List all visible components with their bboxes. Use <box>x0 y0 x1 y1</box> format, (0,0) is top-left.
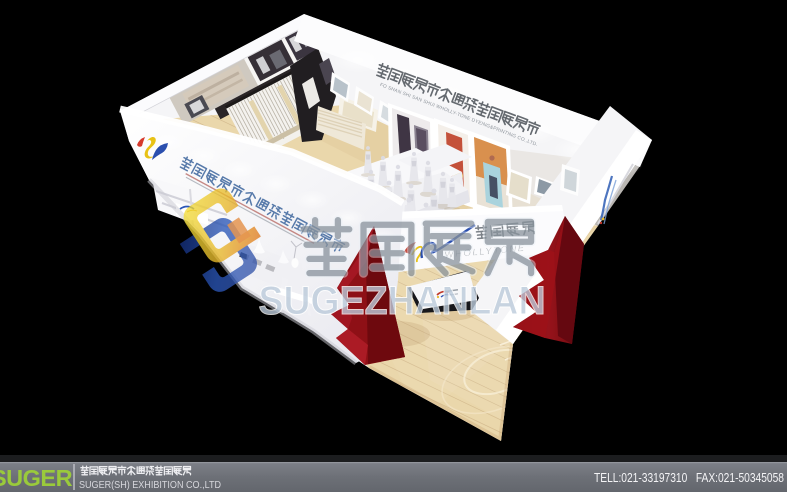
svg-text:SUGER(SH) EXHIBITION CO.,LTD: SUGER(SH) EXHIBITION CO.,LTD <box>79 479 221 491</box>
svg-text:SUGEZHANLAN: SUGEZHANLAN <box>259 279 546 323</box>
svg-text:SUGER: SUGER <box>0 465 73 491</box>
svg-text:TELL:021-33197310 FAX:021-50: TELL:021-33197310 FAX:021-50345058 <box>594 471 784 485</box>
